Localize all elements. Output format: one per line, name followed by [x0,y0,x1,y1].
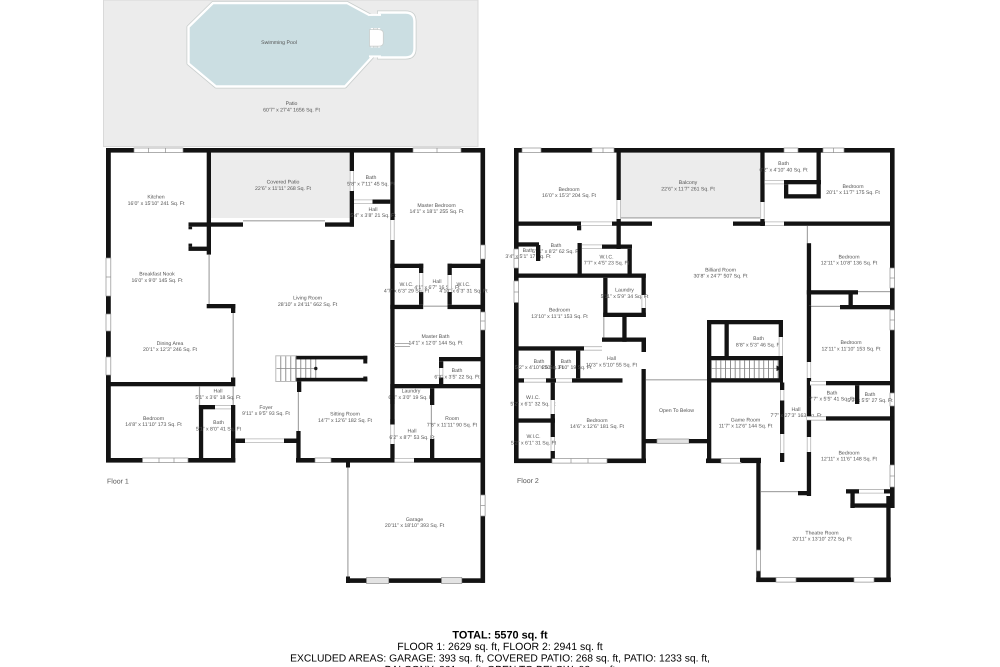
svg-text:Swimming Pool: Swimming Pool [261,40,297,46]
svg-text:Floor 2: Floor 2 [517,477,539,485]
svg-text:5’11” x 5’9” 34 Sq. Ft: 5’11” x 5’9” 34 Sq. Ft [601,294,649,300]
svg-text:Living Room: Living Room [293,296,322,302]
svg-text:TOTAL: 5570 sq. ft: TOTAL: 5570 sq. ft [452,630,548,642]
svg-text:8’8” x 5’3” 46 Sq. Ft: 8’8” x 5’3” 46 Sq. Ft [736,342,782,348]
svg-text:Open To Below: Open To Below [659,408,694,414]
svg-text:60’7” x 27’4” 1656 Sq. Ft: 60’7” x 27’4” 1656 Sq. Ft [263,107,320,113]
svg-text:12’11” x 10’8” 136 Sq. Ft: 12’11” x 10’8” 136 Sq. Ft [821,261,878,267]
svg-text:Hall: Hall [408,429,417,435]
svg-text:5’9” x 5’5” 27 Sq. Ft: 5’9” x 5’5” 27 Sq. Ft [847,398,893,404]
svg-text:6’2” x 8’7” 53 Sq. Ft: 6’2” x 8’7” 53 Sq. Ft [389,435,435,441]
svg-text:7’7” x 4’5” 23 Sq. Ft: 7’7” x 4’5” 23 Sq. Ft [584,261,630,267]
svg-text:Bath: Bath [753,336,764,342]
svg-text:Theatre Room: Theatre Room [805,531,838,537]
svg-text:30’8” x 24’7” 507 Sq. Ft: 30’8” x 24’7” 507 Sq. Ft [694,274,748,280]
svg-text:Hall: Hall [792,407,801,413]
svg-text:Bath: Bath [213,420,224,426]
svg-text:16’0” x 9’0” 145 Sq. Ft: 16’0” x 9’0” 145 Sq. Ft [131,278,183,284]
svg-text:14’6” x 12’6” 181 Sq. Ft: 14’6” x 12’6” 181 Sq. Ft [570,424,624,430]
svg-text:W.I.C.: W.I.C. [599,254,613,260]
svg-text:Bedroom: Bedroom [838,254,859,260]
svg-text:EXCLUDED AREAS: GARAGE: 393 sq: EXCLUDED AREAS: GARAGE: 393 sq. ft, COVE… [290,653,710,664]
svg-text:4’10” x 6’3” 31 Sq. Ft: 4’10” x 6’3” 31 Sq. Ft [439,288,488,294]
svg-text:10’3” x 5’10” 55 Sq. Ft: 10’3” x 5’10” 55 Sq. Ft [586,362,638,368]
svg-text:W.I.C.: W.I.C. [399,282,413,288]
svg-text:W.I.C.: W.I.C. [526,434,540,440]
svg-text:Hall: Hall [214,389,223,395]
svg-text:Billiard Room: Billiard Room [705,268,736,274]
svg-text:6’4” x 3’0” 19 Sq. Ft: 6’4” x 3’0” 19 Sq. Ft [388,395,434,401]
svg-text:20’11” x 13’10” 272 Sq. Ft: 20’11” x 13’10” 272 Sq. Ft [792,537,852,543]
svg-text:Dining Area: Dining Area [157,341,184,347]
svg-text:14’8” x 11’10” 173 Sq. Ft: 14’8” x 11’10” 173 Sq. Ft [125,422,182,428]
svg-text:16’0” x 15’3” 204 Sq. Ft: 16’0” x 15’3” 204 Sq. Ft [542,193,596,199]
svg-text:Bath: Bath [452,368,463,374]
svg-text:5’1” x 8’0” 41 Sq. Ft: 5’1” x 8’0” 41 Sq. Ft [196,426,242,432]
svg-text:5’1” x 3’6” 18 Sq. Ft: 5’1” x 3’6” 18 Sq. Ft [195,395,241,401]
svg-text:W.I.C.: W.I.C. [456,282,470,288]
svg-text:Master Bedroom: Master Bedroom [417,203,455,209]
svg-text:3’4” x 5’1” 17 Sq. Ft: 3’4” x 5’1” 17 Sq. Ft [505,254,551,260]
svg-text:14’1” x 12’0” 144 Sq. Ft: 14’1” x 12’0” 144 Sq. Ft [409,340,463,346]
svg-text:Bath: Bath [865,392,876,398]
svg-text:Bedroom: Bedroom [838,450,859,456]
svg-text:Sitting Room: Sitting Room [330,412,360,418]
svg-text:20’1” x 11’7” 175 Sq. Ft: 20’1” x 11’7” 175 Sq. Ft [826,190,880,196]
svg-text:Bath: Bath [534,359,545,365]
svg-text:12’11” x 11’6” 148 Sq. Ft: 12’11” x 11’6” 148 Sq. Ft [821,457,878,463]
svg-text:4’10” x 3’10” 19 Sq. Ft: 4’10” x 3’10” 19 Sq. Ft [540,365,592,371]
svg-text:Bath: Bath [827,391,838,397]
svg-text:5’2” x 6’1” 32 Sq. Ft: 5’2” x 6’1” 32 Sq. Ft [510,401,556,407]
svg-text:Patio: Patio [286,101,298,107]
svg-text:11’7” x 12’6” 144 Sq. Ft: 11’7” x 12’6” 144 Sq. Ft [719,424,773,430]
svg-text:Bedroom: Bedroom [558,187,579,193]
svg-text:Bath: Bath [778,161,789,167]
svg-text:Kitchen: Kitchen [147,195,164,201]
svg-text:5’2” x 6’1” 31 Sq. Ft: 5’2” x 6’1” 31 Sq. Ft [511,440,557,446]
svg-text:14’7” x 12’6” 182 Sq. Ft: 14’7” x 12’6” 182 Sq. Ft [318,418,372,424]
svg-text:Laundry: Laundry [615,288,634,294]
svg-text:5’4” x 3’8” 21 Sq. Ft: 5’4” x 3’8” 21 Sq. Ft [350,213,396,219]
svg-text:Hall: Hall [607,356,616,362]
svg-text:5’8” x 7’11” 45 Sq. Ft: 5’8” x 7’11” 45 Sq. Ft [347,181,395,187]
svg-text:20’11” x 18’10” 393 Sq. Ft: 20’11” x 18’10” 393 Sq. Ft [385,523,445,529]
svg-text:Bath: Bath [523,248,534,254]
svg-text:Bedroom: Bedroom [586,418,607,424]
svg-text:FLOOR 1: 2629 sq. ft, FLOOR 2:: FLOOR 1: 2629 sq. ft, FLOOR 2: 2941 sq. … [397,641,603,653]
svg-text:Covered Patio: Covered Patio [267,180,300,186]
svg-text:28’10” x 24’11” 662 Sq. Ft: 28’10” x 24’11” 662 Sq. Ft [278,302,338,308]
svg-text:Hall: Hall [433,279,442,285]
svg-text:Bedroom: Bedroom [842,184,863,190]
svg-text:Bath: Bath [561,359,572,365]
svg-text:Master Bath: Master Bath [422,334,450,340]
svg-text:7’8” x 11’11” 90 Sq. Ft: 7’8” x 11’11” 90 Sq. Ft [427,422,478,428]
svg-text:6’3” x 3’5” 22 Sq. Ft: 6’3” x 3’5” 22 Sq. Ft [434,374,480,380]
svg-text:Breakfast Nook: Breakfast Nook [139,272,175,278]
svg-text:W.I.C.: W.I.C. [526,395,540,401]
svg-text:Bedroom: Bedroom [840,340,861,346]
svg-text:Foyer: Foyer [259,405,273,411]
svg-text:20’1” x 12’3” 246 Sq. Ft: 20’1” x 12’3” 246 Sq. Ft [143,347,197,353]
svg-text:Bath: Bath [366,175,377,181]
svg-text:Hall: Hall [369,207,378,213]
svg-text:16’0” x 15’10” 241 Sq. Ft: 16’0” x 15’10” 241 Sq. Ft [128,201,185,207]
svg-text:9’11” x 9’5” 93 Sq. Ft: 9’11” x 9’5” 93 Sq. Ft [242,411,290,417]
svg-text:Bedroom: Bedroom [549,308,570,314]
svg-text:Bath: Bath [551,243,562,249]
svg-text:Laundry: Laundry [402,389,421,395]
svg-text:Garage: Garage [406,517,423,523]
svg-text:12’11” x 11’10” 153 Sq. Ft: 12’11” x 11’10” 153 Sq. Ft [822,346,881,352]
svg-text:13’10” x 11’1” 153 Sq. Ft: 13’10” x 11’1” 153 Sq. Ft [531,314,588,320]
svg-text:Floor 1: Floor 1 [107,478,129,486]
svg-text:22’6” x 11’7” 261 Sq. Ft: 22’6” x 11’7” 261 Sq. Ft [661,186,715,192]
svg-text:Bedroom: Bedroom [143,416,164,422]
svg-text:Game Room: Game Room [731,418,760,424]
svg-text:Room: Room [445,416,459,422]
svg-text:22’6” x 11’11” 268 Sq. Ft: 22’6” x 11’11” 268 Sq. Ft [255,186,312,192]
svg-text:14’1” x 18’1” 255 Sq. Ft: 14’1” x 18’1” 255 Sq. Ft [410,209,464,215]
svg-text:6’2” x 4’10” 40 Sq. Ft: 6’2” x 4’10” 40 Sq. Ft [759,167,808,173]
svg-text:Balcony: Balcony [679,180,698,186]
